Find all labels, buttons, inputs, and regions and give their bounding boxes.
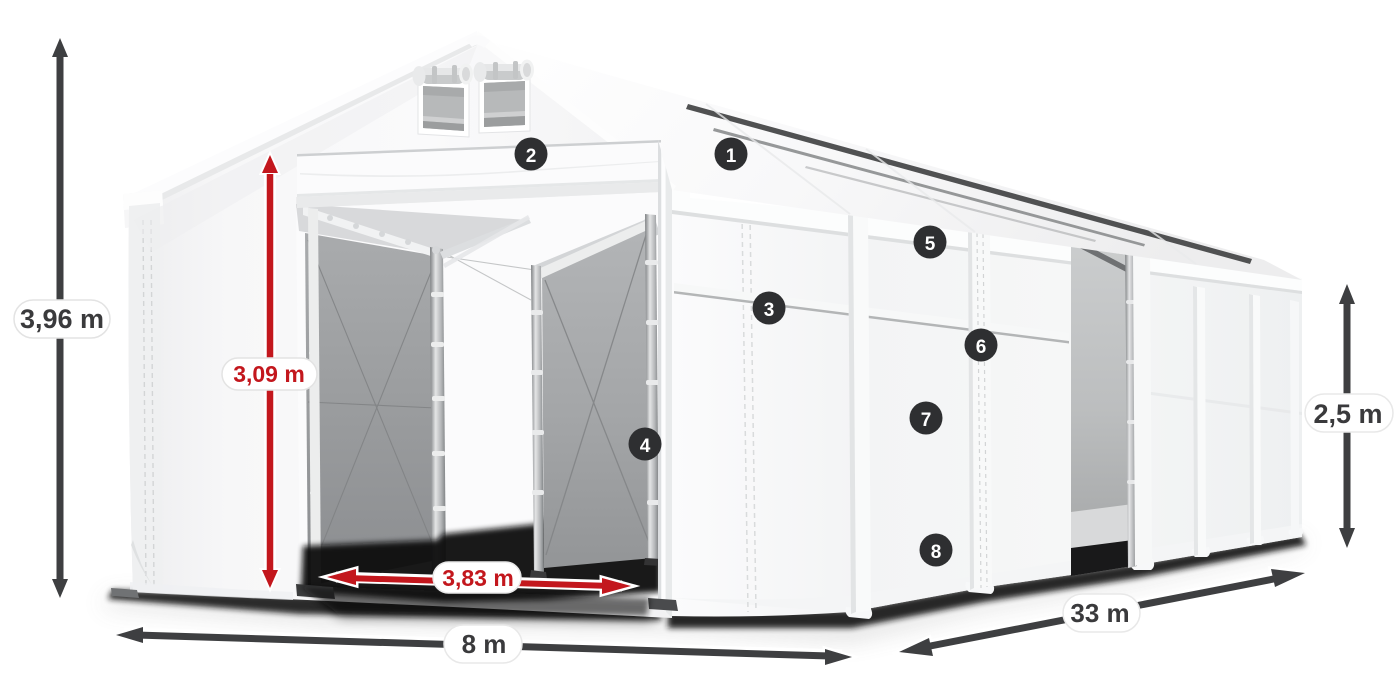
svg-text:2: 2 xyxy=(526,146,537,167)
svg-text:8 m: 8 m xyxy=(462,629,507,659)
svg-text:4: 4 xyxy=(640,436,651,457)
svg-text:6: 6 xyxy=(976,337,987,358)
svg-text:1: 1 xyxy=(726,146,737,167)
svg-text:3,09 m: 3,09 m xyxy=(233,361,305,387)
svg-text:7: 7 xyxy=(921,410,932,431)
svg-text:3,96 m: 3,96 m xyxy=(20,304,104,334)
svg-text:5: 5 xyxy=(925,234,936,255)
svg-text:3,83 m: 3,83 m xyxy=(442,565,514,591)
svg-text:3: 3 xyxy=(764,300,775,321)
svg-text:8: 8 xyxy=(931,542,942,563)
svg-text:2,5 m: 2,5 m xyxy=(1313,399,1382,429)
svg-text:33 m: 33 m xyxy=(1070,598,1129,628)
